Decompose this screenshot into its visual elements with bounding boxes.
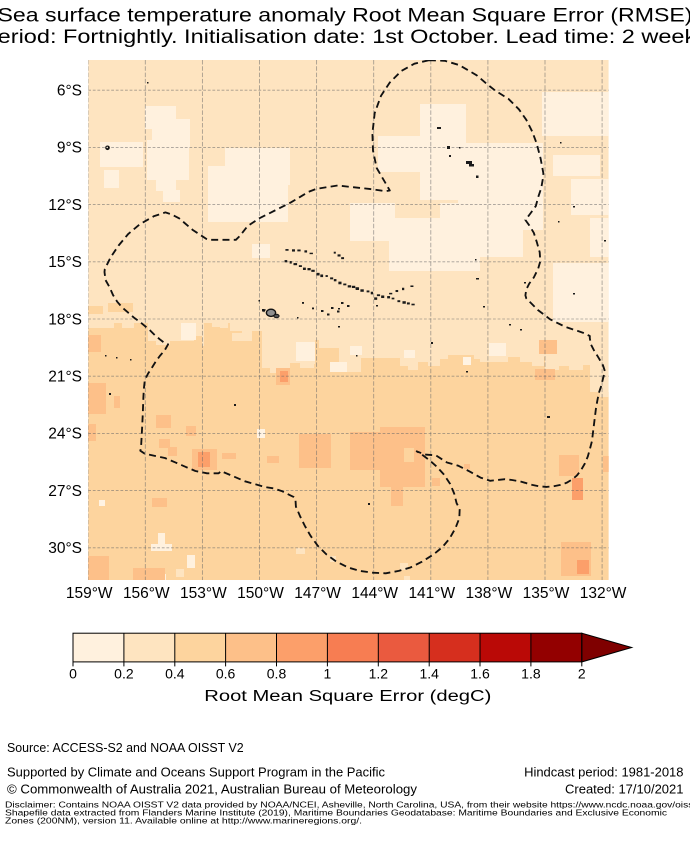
svg-text:Supported by Climate and Ocean: Supported by Climate and Oceans Support … — [7, 765, 385, 780]
svg-text:Source: ACCESS-S2 and NOAA OIS: Source: ACCESS-S2 and NOAA OISST V2 — [7, 740, 244, 755]
svg-text:153°W: 153°W — [180, 585, 227, 602]
svg-text:0: 0 — [69, 666, 77, 682]
svg-text:0.8: 0.8 — [267, 666, 287, 682]
svg-text:Sea surface temperature anomal: Sea surface temperature anomaly Root Mea… — [0, 4, 690, 26]
svg-text:1.4: 1.4 — [419, 666, 439, 682]
svg-text:0.4: 0.4 — [165, 666, 185, 682]
svg-text:147°W: 147°W — [294, 585, 341, 602]
svg-text:Hindcast period: 1981-2018: Hindcast period: 1981-2018 — [524, 765, 683, 780]
svg-text:24°S: 24°S — [48, 426, 82, 443]
svg-text:2: 2 — [578, 666, 586, 682]
svg-text:135°W: 135°W — [523, 585, 570, 602]
svg-text:18°S: 18°S — [48, 311, 82, 328]
svg-text:© Commonwealth of Australia 20: © Commonwealth of Australia 2021, Austra… — [7, 781, 417, 796]
svg-text:159°W: 159°W — [66, 585, 113, 602]
svg-text:132°W: 132°W — [580, 585, 627, 602]
svg-text:21°S: 21°S — [48, 369, 82, 386]
svg-text:15°S: 15°S — [48, 254, 82, 271]
svg-text:1.2: 1.2 — [369, 666, 389, 682]
svg-text:6°S: 6°S — [57, 83, 82, 100]
svg-text:9°S: 9°S — [57, 140, 82, 157]
svg-text:0.2: 0.2 — [114, 666, 134, 682]
svg-text:30°S: 30°S — [48, 540, 82, 557]
svg-text:Period: Fortnightly. Initialis: Period: Fortnightly. Initialisation date… — [0, 26, 690, 48]
svg-text:156°W: 156°W — [123, 585, 170, 602]
svg-text:141°W: 141°W — [408, 585, 455, 602]
svg-text:Created: 17/10/2021: Created: 17/10/2021 — [565, 781, 684, 796]
svg-text:12°S: 12°S — [48, 197, 82, 214]
svg-text:27°S: 27°S — [48, 483, 82, 500]
svg-text:Root Mean Square Error (degC): Root Mean Square Error (degC) — [204, 688, 491, 705]
svg-text:1: 1 — [324, 666, 332, 682]
svg-text:0.6: 0.6 — [216, 666, 236, 682]
svg-text:1.8: 1.8 — [521, 666, 541, 682]
svg-text:144°W: 144°W — [351, 585, 398, 602]
svg-text:1.6: 1.6 — [470, 666, 490, 682]
svg-text:138°W: 138°W — [466, 585, 513, 602]
svg-text:150°W: 150°W — [237, 585, 284, 602]
svg-text:Zones (200NM), version 11. Ava: Zones (200NM), version 11. Available onl… — [5, 816, 362, 826]
